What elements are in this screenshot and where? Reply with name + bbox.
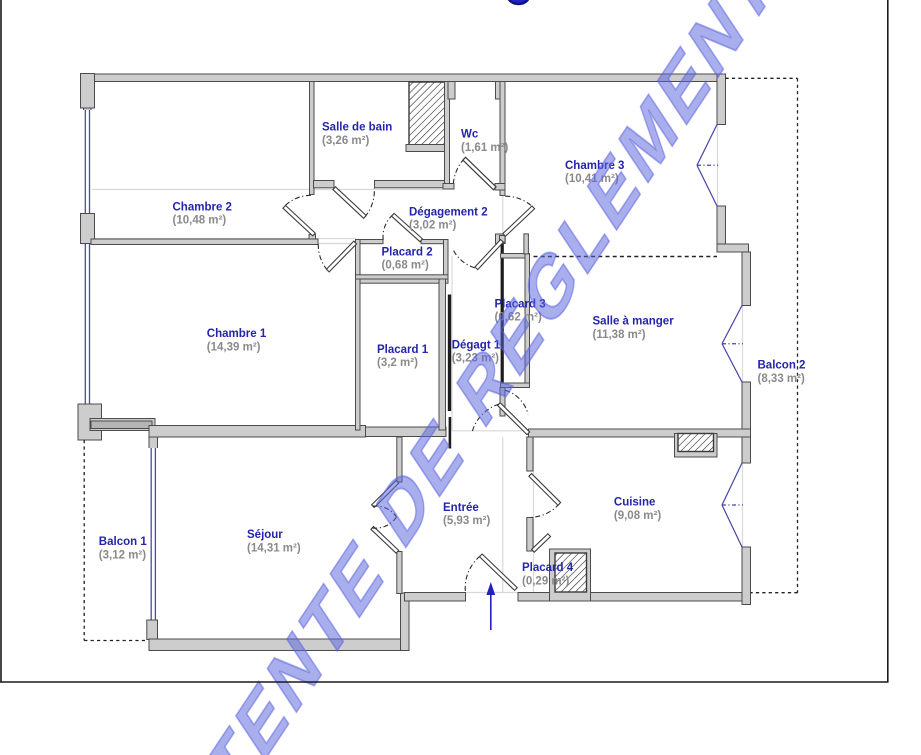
svg-text:(3,26 m²): (3,26 m²) (322, 135, 369, 147)
svg-text:(8,33 m²): (8,33 m²) (758, 373, 805, 385)
svg-text:(10,48 m²): (10,48 m²) (173, 215, 227, 227)
svg-text:(5,93 m²): (5,93 m²) (443, 515, 490, 527)
svg-text:Salle de bain: Salle de bain (322, 122, 392, 134)
svg-text:(1,61 m²): (1,61 m²) (461, 142, 508, 154)
svg-text:Cuisine: Cuisine (614, 497, 656, 509)
svg-text:Placard 4: Placard 4 (522, 562, 574, 574)
svg-text:Balcon 2: Balcon 2 (758, 360, 806, 372)
svg-text:(14,39 m²): (14,39 m²) (207, 341, 261, 353)
svg-text:Séjour: Séjour (247, 529, 283, 541)
svg-text:(3,12 m²): (3,12 m²) (99, 549, 146, 561)
svg-text:(14,31 m²): (14,31 m²) (247, 542, 301, 554)
svg-text:Wc: Wc (461, 129, 479, 141)
svg-text:Placard 2: Placard 2 (382, 246, 433, 258)
svg-text:Balcon 1: Balcon 1 (99, 536, 148, 548)
svg-text:(9,08 m²): (9,08 m²) (614, 510, 661, 522)
svg-text:(3,02 m²): (3,02 m²) (409, 220, 456, 232)
svg-text:Chambre 1: Chambre 1 (207, 328, 267, 340)
svg-text:(11,38 m²): (11,38 m²) (593, 329, 646, 341)
svg-text:Placard 1: Placard 1 (377, 344, 429, 356)
svg-text:(0,29 m²): (0,29 m²) (522, 575, 569, 587)
svg-text:Salle à manger: Salle à manger (593, 316, 675, 328)
svg-text:(0,68 m²): (0,68 m²) (382, 260, 429, 272)
svg-text:Chambre 2: Chambre 2 (173, 201, 232, 213)
svg-text:(3,2 m²): (3,2 m²) (377, 357, 418, 369)
svg-text:Dégagement 2: Dégagement 2 (409, 206, 488, 218)
